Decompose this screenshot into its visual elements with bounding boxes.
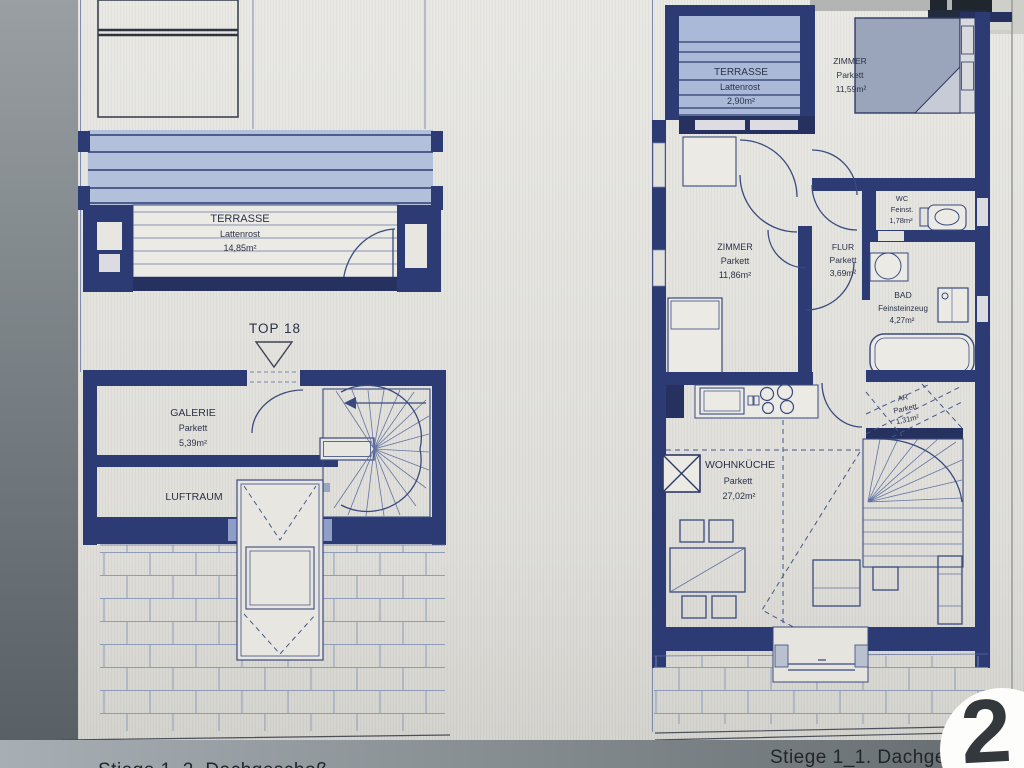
room-area: 1,78m² <box>889 216 913 225</box>
room-name: ZIMMER <box>717 242 753 252</box>
sink-icon <box>870 253 908 281</box>
balcony-door-recess <box>773 627 868 682</box>
kitchen-counter-icon <box>695 385 818 419</box>
bed-icon <box>855 18 975 113</box>
shaft-x-icon <box>663 455 700 492</box>
room-material: Parkett <box>724 476 753 486</box>
room-material: Feinsteinzeug <box>878 304 928 313</box>
room-material: Lattenrost <box>220 229 261 239</box>
photo-left-margin <box>0 0 78 768</box>
skylight-shaft <box>237 480 323 660</box>
floorplan-svg: TERRASSE Lattenrost 14,85m² TOP 18 GALER… <box>0 0 1024 768</box>
room-area: 5,39m² <box>179 438 207 448</box>
room-material: Lattenrost <box>720 82 761 92</box>
room-area: 3,69m² <box>830 268 857 278</box>
room-name: ZIMMER <box>833 56 867 66</box>
room-name: FLUR <box>832 242 854 252</box>
room-material: Parkett <box>830 255 858 265</box>
room-area: 2,90m² <box>727 96 755 106</box>
caption-left: Stiege 1_2. Dachgeschoß <box>98 760 328 768</box>
room-label-luftraum: LUFTRAUM <box>165 491 222 503</box>
room-label-zimmer-mid: ZIMMER Parkett 11,86m² <box>717 242 753 280</box>
unit-label: TOP 18 <box>249 321 301 336</box>
room-label-flur: FLUR Parkett 3,69m² <box>830 242 858 278</box>
room-area: 4,27m² <box>890 316 915 325</box>
room-name: TERRASSE <box>210 213 269 225</box>
room-area: 11,86m² <box>719 270 751 280</box>
room-area: 14,85m² <box>223 243 256 253</box>
bathtub-icon <box>870 334 974 376</box>
room-name: BAD <box>894 290 911 300</box>
logo-glyph: 2 <box>958 681 1013 768</box>
room-material: Feinst. <box>891 205 914 214</box>
terrace-slats-upper <box>78 130 443 210</box>
room-material: Parkett <box>837 70 865 80</box>
room-area: 11,59m² <box>836 84 867 94</box>
room-area: 27,02m² <box>722 491 755 501</box>
bed-icon-2 <box>668 298 722 374</box>
room-name: GALERIE <box>170 407 216 419</box>
room-name: WC <box>896 194 909 203</box>
room-name: WOHNKÜCHE <box>705 459 775 471</box>
room-name: TERRASSE <box>714 67 768 78</box>
room-material: Parkett <box>179 423 208 433</box>
room-material: Parkett <box>721 256 750 266</box>
room-label-zimmer-top: ZIMMER Parkett 11,59m² <box>833 56 867 94</box>
washing-machine-icon <box>938 288 968 322</box>
floorplan-photo: TERRASSE Lattenrost 14,85m² TOP 18 GALER… <box>0 0 1024 768</box>
